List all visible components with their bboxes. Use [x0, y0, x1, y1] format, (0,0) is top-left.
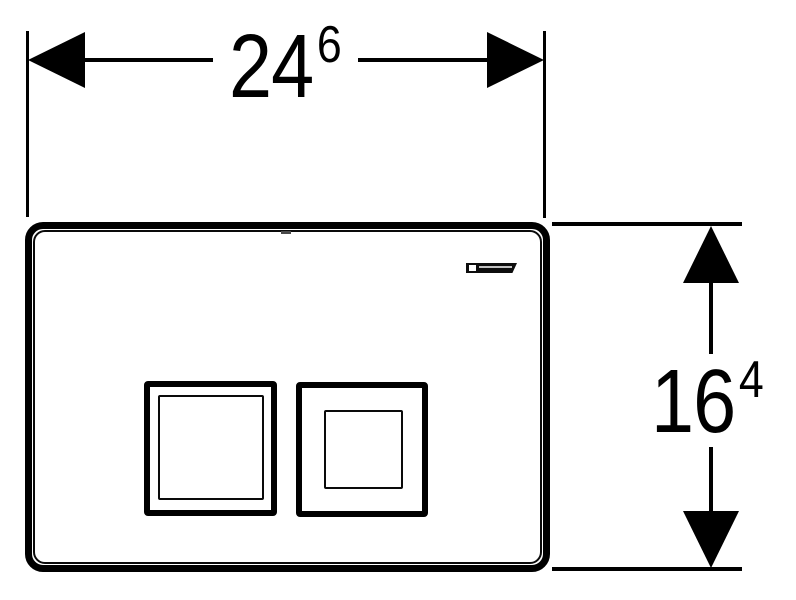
- extension-line-right: [543, 31, 546, 218]
- logo-streak-detail: [479, 266, 512, 268]
- dimension-line-height-top-segment: [709, 281, 713, 354]
- dimension-line-width-right-segment: [358, 58, 489, 62]
- plate-center-tick: [281, 231, 291, 234]
- flush-plate-inner-outline: [33, 230, 542, 564]
- width-dimension-label: 24 6: [229, 22, 341, 112]
- height-value: 16: [651, 357, 735, 447]
- arrowhead-down-icon: [683, 511, 739, 568]
- geberit-logo-icon: [466, 263, 517, 273]
- extension-line-bottom: [552, 567, 742, 571]
- width-value: 24: [229, 22, 313, 112]
- extension-line-top: [552, 222, 742, 226]
- flush-plate: [25, 222, 550, 572]
- height-superscript: 4: [739, 354, 763, 406]
- width-superscript: 6: [317, 19, 341, 71]
- extension-line-left: [26, 31, 29, 217]
- dimension-line-width-left-segment: [80, 58, 213, 62]
- dimension-line-height-bottom-segment: [709, 447, 713, 513]
- arrowhead-up-icon: [683, 226, 739, 283]
- full-flush-button-inner-outline: [158, 395, 264, 500]
- arrowhead-right-icon: [487, 32, 544, 88]
- technical-drawing-canvas: 24 6 16 4: [0, 0, 796, 600]
- height-dimension-label: 16 4: [651, 357, 763, 447]
- logo-square-detail: [469, 265, 476, 271]
- arrowhead-left-icon: [28, 32, 85, 88]
- half-flush-button-inner-outline: [324, 410, 403, 489]
